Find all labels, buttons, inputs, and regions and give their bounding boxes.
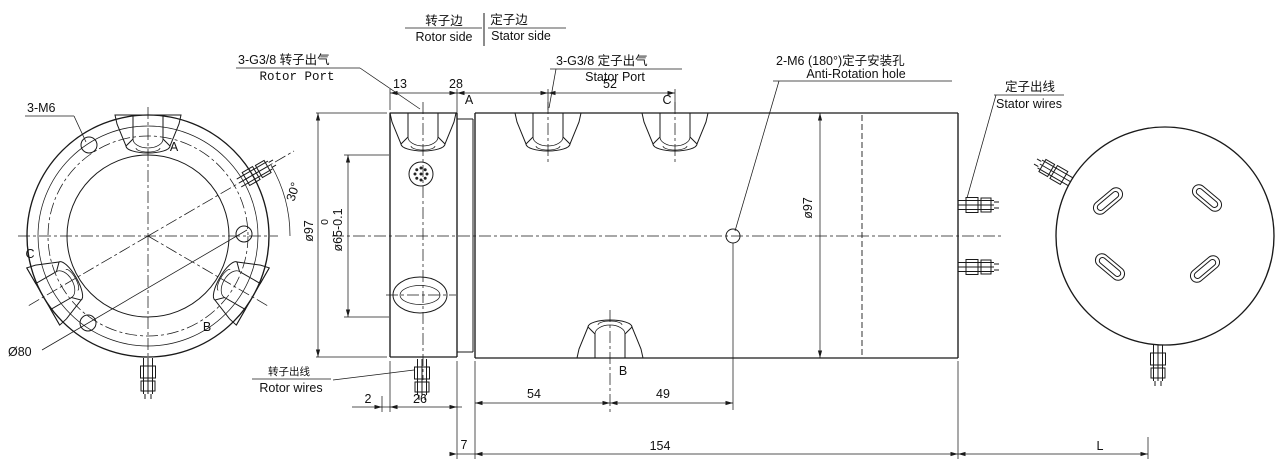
stator-wires-angled: [1032, 155, 1075, 188]
dim-wire-offset: 26: [413, 392, 427, 406]
rotor-side-label-en: Rotor side: [416, 30, 473, 44]
port-a-letter-main: A: [465, 93, 474, 107]
rotor-wires-label-en: Rotor wires: [259, 381, 322, 395]
wire-slot-nw: [1091, 185, 1125, 217]
stator-wires-label-zh: 定子出线: [1005, 79, 1056, 94]
stator-body-view: A C B: [332, 93, 1002, 412]
dim-boss-dia: ø65-0.1: [331, 208, 345, 251]
bolt-circle-dia-label: Ø80: [8, 345, 32, 359]
dim-flange-thickness: 13: [393, 77, 407, 91]
port-c-front: [27, 249, 93, 325]
port-b-letter-front: B: [203, 320, 211, 334]
rotor-wires-label-zh: 转子出线: [268, 365, 310, 378]
rotor-port-label-en: Rotor Port: [259, 70, 334, 84]
port-c-letter-main: C: [662, 93, 671, 107]
dim-anti-rotation-offset: 49: [656, 387, 670, 401]
wire-slot-sw: [1093, 251, 1127, 283]
stator-end-view: [1032, 127, 1274, 386]
wire-slot-se: [1188, 253, 1222, 285]
dim-step-width: 7: [461, 438, 468, 452]
dimensions: 13 28 52 ø97 0 ø65-0.1 2 26 54 49: [302, 77, 1148, 459]
mounting-holes-label: 3-M6: [27, 101, 56, 115]
dim-wire-angle: 30°: [284, 181, 303, 203]
slip-ring-drawing: 转子边 Rotor side 定子边 Stator side 30°: [0, 0, 1285, 464]
dim-port-b-offset: 54: [527, 387, 541, 401]
dim-wire-length: L: [1097, 439, 1104, 453]
port-b-letter-main: B: [619, 364, 627, 378]
side-header: 转子边 Rotor side 定子边 Stator side: [405, 12, 566, 46]
dim-flange-od: ø97: [302, 220, 316, 242]
stator-side-label-en: Stator side: [491, 29, 551, 43]
rotor-side-label-zh: 转子边: [425, 13, 463, 28]
rotor-flange-front-view: 30° 3-M6 Ø80 A C B: [8, 101, 303, 399]
stator-wires-upper: [958, 198, 999, 213]
wire-slot-ne: [1190, 182, 1224, 214]
port-b-ellipse-view: [386, 277, 456, 313]
dim-port-a-offset: 28: [449, 77, 463, 91]
stator-wires-lower: [958, 260, 999, 275]
m6-hole-1: [81, 137, 97, 153]
dim-boss-tol-upper: 0: [319, 219, 331, 225]
m6-hole-2: [236, 226, 252, 242]
rotor-flange-side-view: 转子出线 Rotor wires: [252, 102, 473, 400]
rotor-wires-bottom: [141, 358, 156, 399]
stator-wires-bottom: [1151, 345, 1166, 386]
dim-body-length: 154: [650, 439, 671, 453]
wire-hole-end-view: [409, 162, 433, 186]
port-b-front: [203, 249, 269, 325]
dim-body-od: ø97: [801, 197, 815, 219]
rotor-port-label-zh: 3-G3/8 转子出气: [238, 52, 330, 67]
dim-gap: 2: [365, 392, 372, 406]
port-c-letter-front: C: [25, 247, 34, 261]
technical-drawing-page: 转子边 Rotor side 定子边 Stator side 30°: [0, 0, 1285, 464]
anti-rotation-label-zh: 2-M6 (180°)定子安装孔: [776, 53, 905, 68]
anti-rotation-label-en: Anti-Rotation hole: [806, 67, 905, 81]
stator-port-label-zh: 3-G3/8 定子出气: [556, 53, 648, 68]
callouts: 3-G3/8 转子出气 Rotor Port 3-G3/8 定子出气 Stato…: [236, 52, 1064, 231]
port-a-letter-front: A: [170, 140, 179, 154]
stator-wires-label-en: Stator wires: [996, 97, 1062, 111]
dim-port-spacing: 52: [603, 77, 617, 91]
stator-side-label-zh: 定子边: [490, 12, 528, 27]
